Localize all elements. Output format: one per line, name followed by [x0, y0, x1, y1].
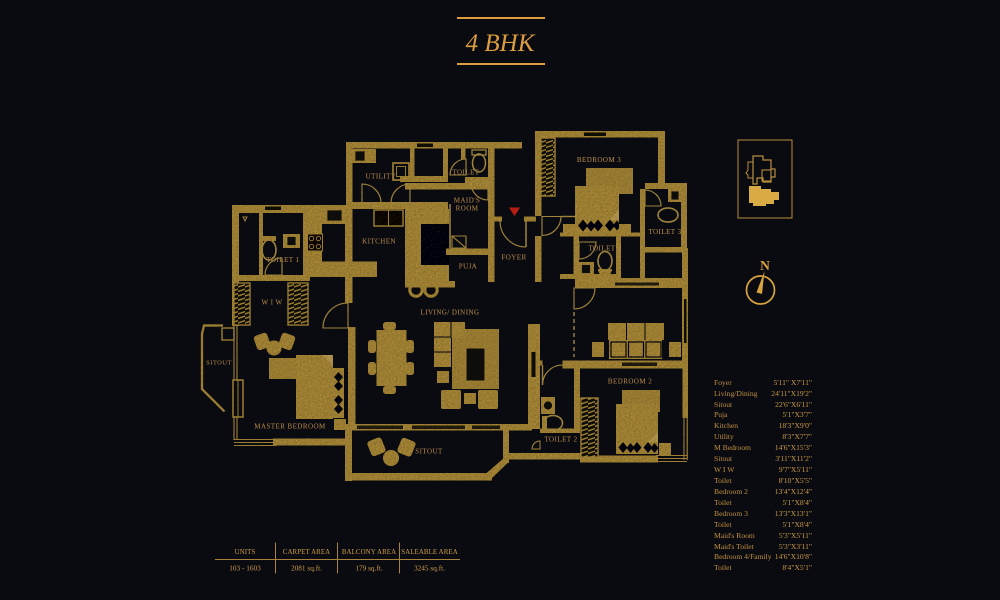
svg-text:N: N	[760, 258, 770, 273]
svg-text:MAID'S: MAID'S	[454, 197, 481, 205]
svg-text:8'10"X5'5": 8'10"X5'5"	[779, 476, 812, 485]
svg-text:179 sq.ft.: 179 sq.ft.	[355, 564, 383, 573]
svg-text:Maid's Room: Maid's Room	[714, 531, 755, 540]
svg-text:Sitout: Sitout	[714, 454, 733, 463]
svg-text:M Bedroom: M Bedroom	[714, 443, 751, 452]
svg-text:3245 sq.ft.: 3245 sq.ft.	[414, 564, 445, 573]
svg-text:TOILET 3: TOILET 3	[648, 228, 681, 236]
svg-text:BEDROOM 2: BEDROOM 2	[608, 378, 652, 386]
svg-text:5'1"X8'4": 5'1"X8'4"	[782, 498, 812, 507]
svg-text:13'4"X12'4": 13'4"X12'4"	[775, 487, 812, 496]
svg-text:KITCHEN: KITCHEN	[362, 238, 396, 246]
svg-text:18'3"X9'0": 18'3"X9'0"	[779, 421, 812, 430]
svg-text:W I W: W I W	[714, 465, 735, 474]
svg-text:Utility: Utility	[714, 432, 734, 441]
svg-text:SITOUT: SITOUT	[415, 448, 443, 456]
svg-text:Maid's Toilet: Maid's Toilet	[714, 542, 755, 551]
svg-text:Toilet: Toilet	[714, 563, 732, 572]
svg-text:5'3"X5'11": 5'3"X5'11"	[779, 531, 812, 540]
svg-text:CARPET AREA: CARPET AREA	[283, 549, 331, 556]
svg-text:13'3"X13'1": 13'3"X13'1"	[775, 509, 812, 518]
svg-text:BALCONY AREA: BALCONY AREA	[342, 549, 396, 556]
svg-text:PUJA: PUJA	[459, 263, 478, 271]
svg-text:LIVING/ DINING: LIVING/ DINING	[421, 309, 480, 317]
svg-text:5'1"X8'4": 5'1"X8'4"	[782, 520, 812, 529]
svg-text:Bedroom 4/Family: Bedroom 4/Family	[714, 552, 772, 561]
svg-text:Toilet: Toilet	[714, 498, 732, 507]
svg-text:2081 sq.ft.: 2081 sq.ft.	[291, 564, 322, 573]
svg-text:Toilet: Toilet	[714, 520, 732, 529]
svg-text:Foyer: Foyer	[714, 378, 732, 387]
svg-text:5'11" X7'11": 5'11" X7'11"	[773, 378, 812, 387]
svg-text:22'6"X6'11": 22'6"X6'11"	[775, 400, 812, 409]
svg-text:W I W: W I W	[261, 299, 282, 307]
svg-text:Bedroom 3: Bedroom 3	[714, 509, 748, 518]
svg-text:MASTER BEDROOM: MASTER BEDROOM	[254, 423, 326, 431]
svg-text:24'11"X19'2": 24'11"X19'2"	[771, 389, 812, 398]
svg-text:UTILITY: UTILITY	[366, 173, 397, 181]
svg-text:Sitout: Sitout	[714, 400, 733, 409]
svg-text:5'3"X3'11": 5'3"X3'11"	[779, 542, 812, 551]
svg-text:8'3"X7'7": 8'3"X7'7"	[782, 432, 812, 441]
svg-text:4 BHK: 4 BHK	[466, 30, 536, 57]
svg-text:103 - 1603: 103 - 1603	[229, 564, 261, 573]
svg-text:Puja: Puja	[714, 410, 728, 419]
svg-text:14'6"X15'3": 14'6"X15'3"	[775, 443, 812, 452]
svg-text:14'6"X10'8": 14'6"X10'8"	[775, 552, 812, 561]
svg-text:TOILET 4: TOILET 4	[588, 245, 621, 253]
svg-text:Toilet: Toilet	[714, 476, 732, 485]
svg-text:9'7"X5'11": 9'7"X5'11"	[779, 465, 812, 474]
svg-text:TOILET: TOILET	[452, 169, 479, 177]
svg-text:FOYER: FOYER	[501, 254, 526, 262]
svg-text:SALEABLE AREA: SALEABLE AREA	[401, 549, 458, 556]
svg-text:8'4"X5'1": 8'4"X5'1"	[782, 563, 812, 572]
svg-text:3'11"X11'2": 3'11"X11'2"	[775, 454, 812, 463]
svg-text:UNITS: UNITS	[235, 549, 256, 556]
svg-text:Kitchen: Kitchen	[714, 421, 738, 430]
svg-text:TOILET 1: TOILET 1	[266, 256, 299, 264]
svg-text:Bedroom 2: Bedroom 2	[714, 487, 748, 496]
svg-text:ROOM: ROOM	[456, 205, 479, 213]
svg-text:TOILET 2: TOILET 2	[544, 436, 577, 444]
svg-text:5'1"X3'7": 5'1"X3'7"	[782, 410, 812, 419]
svg-text:BEDROOM 3: BEDROOM 3	[577, 156, 621, 164]
svg-text:SITOUT: SITOUT	[206, 360, 232, 367]
svg-text:Living/Dining: Living/Dining	[714, 389, 758, 398]
